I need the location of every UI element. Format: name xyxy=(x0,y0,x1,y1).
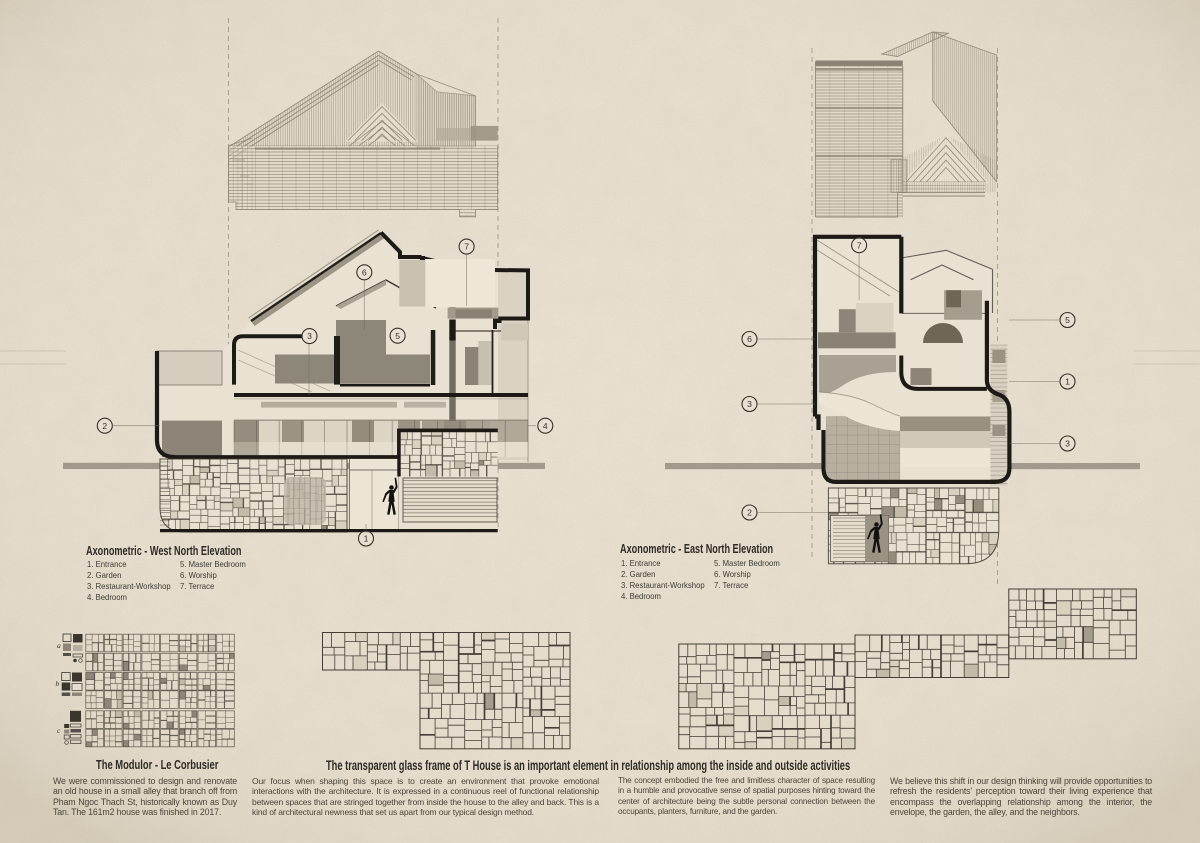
svg-text:a: a xyxy=(57,641,61,650)
svg-text:6: 6 xyxy=(747,334,752,344)
svg-text:2: 2 xyxy=(102,421,107,431)
svg-text:1: 1 xyxy=(1065,377,1070,387)
svg-text:6: 6 xyxy=(362,267,367,277)
svg-text:1: 1 xyxy=(364,534,369,544)
svg-text:7: 7 xyxy=(464,242,469,252)
svg-text:7: 7 xyxy=(857,240,862,250)
svg-text:3: 3 xyxy=(307,331,312,341)
svg-text:4: 4 xyxy=(543,421,548,431)
svg-text:5: 5 xyxy=(1065,315,1070,325)
svg-text:2: 2 xyxy=(747,508,752,518)
svg-text:5: 5 xyxy=(395,331,400,341)
svg-text:b: b xyxy=(56,679,60,688)
svg-text:3: 3 xyxy=(747,399,752,409)
svg-text:3: 3 xyxy=(1065,439,1070,449)
